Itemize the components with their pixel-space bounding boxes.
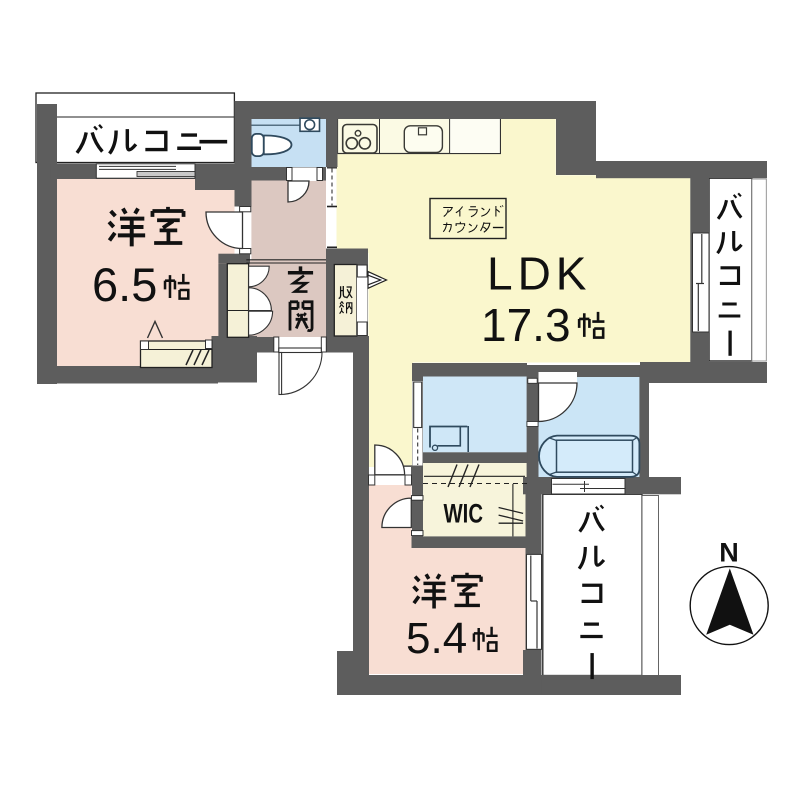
svg-text:WIC: WIC <box>444 499 484 529</box>
svg-text:5.4: 5.4 <box>406 614 467 663</box>
svg-text:17.3: 17.3 <box>481 299 571 351</box>
svg-text:6.5: 6.5 <box>92 258 157 311</box>
svg-text:LDK: LDK <box>487 248 591 300</box>
svg-text:N: N <box>719 538 739 568</box>
